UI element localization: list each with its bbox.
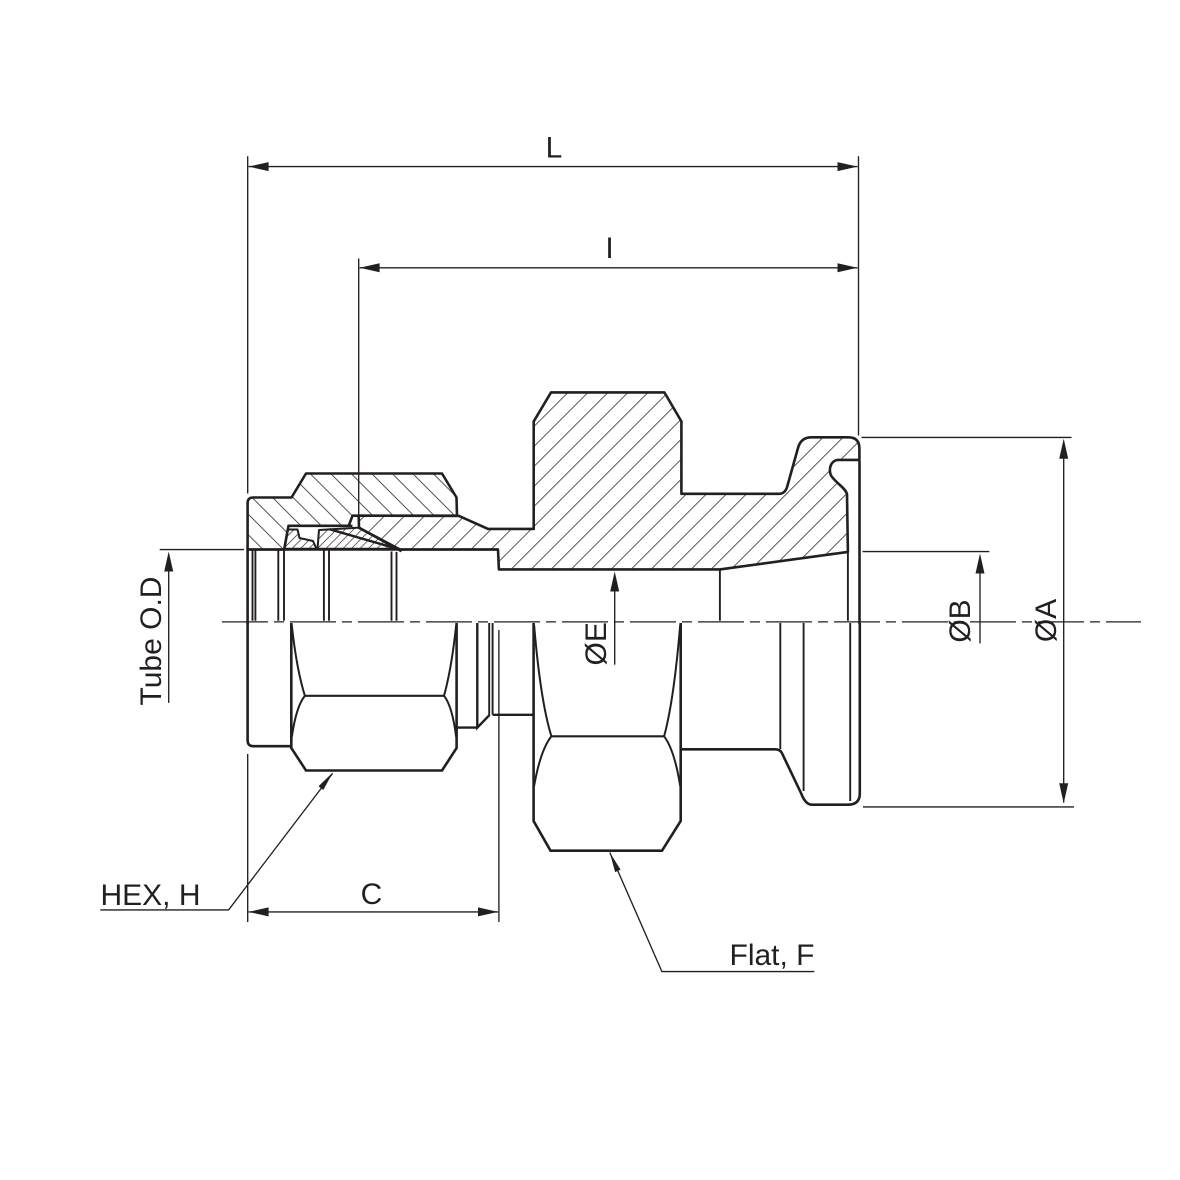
svg-text:HEX, H: HEX, H xyxy=(101,879,201,912)
svg-text:Tube O.D: Tube O.D xyxy=(135,577,168,706)
svg-text:I: I xyxy=(605,232,613,265)
svg-text:L: L xyxy=(546,132,563,165)
svg-text:C: C xyxy=(361,878,383,911)
svg-text:Flat, F: Flat, F xyxy=(730,939,815,972)
svg-text:ØE: ØE xyxy=(580,622,613,665)
svg-text:ØA: ØA xyxy=(1030,599,1063,642)
svg-text:ØB: ØB xyxy=(944,599,977,642)
